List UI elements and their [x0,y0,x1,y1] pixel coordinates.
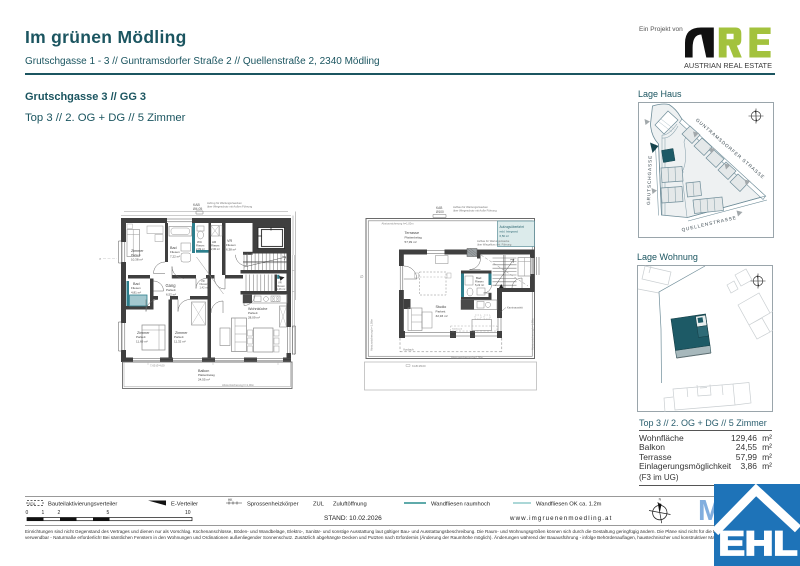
svg-text:Bauteilaktivierungsverteiler: Bauteilaktivierungsverteiler [48,502,117,508]
svg-text:11,32 m²: 11,32 m² [174,339,186,343]
svg-text:HK: HK [228,498,233,502]
svg-text:Bad: Bad [476,276,482,280]
svg-text:Studio: Studio [436,305,447,309]
svg-text:10,38 m²: 10,38 m² [131,257,143,261]
svg-text:Aufzugsüberfahrt: Aufzugsüberfahrt [500,225,524,229]
svg-text:Terrasse: Terrasse [405,231,420,235]
svg-text:Ø100: Ø100 [436,210,444,214]
svg-text:E-Verteiler: E-Verteiler [171,502,198,508]
svg-text:7,65 Ø 4,00: 7,65 Ø 4,00 [150,364,165,368]
svg-text:Absturzsicherung h=1,00m: Absturzsicherung h=1,00m [531,317,535,350]
svg-text:ZUL: ZUL [313,502,325,508]
svg-text:N: N [659,498,662,502]
svg-text:32,93 m²: 32,93 m² [436,314,448,318]
svg-text:Ø4,05: Ø4,05 [193,207,202,211]
svg-text:57,99 m²: 57,99 m² [405,240,417,244]
svg-text:KAB Ø100: KAB Ø100 [412,364,426,368]
svg-text:∅: ∅ [360,274,364,279]
svg-text:EHL: EHL [719,525,798,563]
svg-text:Wandfliesen raumhoch: Wandfliesen raumhoch [431,502,490,508]
svg-text:1,46 m²: 1,46 m² [277,287,286,291]
svg-text:5: 5 [107,510,110,516]
svg-text:5,22 m²: 5,22 m² [475,283,484,287]
svg-text:2,09 m²: 2,09 m² [196,247,205,251]
svg-text:über Wiegeschutz mit Außen Füh: über Wiegeschutz mit Außen Führung [207,205,253,209]
svg-text:AR: AR [212,240,217,244]
svg-text:×: × [99,256,102,261]
svg-text:AUSTRIAN REAL ESTATE: AUSTRIAN REAL ESTATE [684,61,772,70]
svg-text:Sprossenheizkörper: Sprossenheizkörper [247,502,299,508]
svg-text:2,30 m²: 2,30 m² [211,247,220,251]
svg-text:Absturzsicherung h=1,00m: Absturzsicherung h=1,00m [451,355,484,359]
svg-text:10: 10 [185,510,191,516]
svg-text:6,56 m²: 6,56 m² [500,234,510,238]
svg-text:1,42 m²: 1,42 m² [200,285,209,289]
svg-text:Sideboard: Sideboard [452,328,463,331]
svg-text:1: 1 [42,510,45,516]
svg-text:6,52 m²: 6,52 m² [166,292,176,296]
svg-text:11,69 m²: 11,69 m² [136,339,148,343]
svg-text:7,22 m²: 7,22 m² [170,254,180,258]
svg-text:Wandfliesen OK ca. 1.2m: Wandfliesen OK ca. 1.2m [536,502,602,508]
svg-text:exkl. Integrand: exkl. Integrand [500,230,519,234]
svg-text:Fliesen: Fliesen [475,280,484,284]
svg-text:Absturzsicherung h=1,00m: Absturzsicherung h=1,00m [222,383,255,387]
svg-text:über Wiegeschutz mit Auße Führ: über Wiegeschutz mit Auße Führung [453,209,497,213]
svg-text:über Wiegefluss inkl. Führung: über Wiegefluss inkl. Führung [477,242,512,246]
svg-text:WC: WC [197,240,203,244]
svg-text:BTA: BTA [29,502,36,506]
svg-text:Aufzug für Wartungszwecken: Aufzug für Wartungszwecken [207,201,242,205]
svg-text:4,81 m²: 4,81 m² [131,290,141,294]
svg-text:Plattenbelag: Plattenbelag [405,236,422,240]
svg-text:Kaminaustritt: Kaminaustritt [507,306,523,310]
svg-text:28,09 m²: 28,09 m² [248,315,260,319]
svg-text:Zuluftöffnung: Zuluftöffnung [333,502,367,508]
svg-text:Parkett: Parkett [436,310,446,314]
svg-text:Absturzsicherung h=1,00m: Absturzsicherung h=1,00m [382,222,415,226]
svg-text:24,55 m²: 24,55 m² [198,377,210,381]
svg-text:6,38 m²: 6,38 m² [226,247,236,251]
svg-text:Aufbau für Wartungszwecken: Aufbau für Wartungszwecken [453,205,489,209]
svg-text:0: 0 [26,510,29,516]
svg-text:2: 2 [58,510,61,516]
svg-text:Vordach: Vordach [403,348,414,352]
svg-text:Absturzsicherung h=1,00m: Absturzsicherung h=1,00m [369,318,373,351]
